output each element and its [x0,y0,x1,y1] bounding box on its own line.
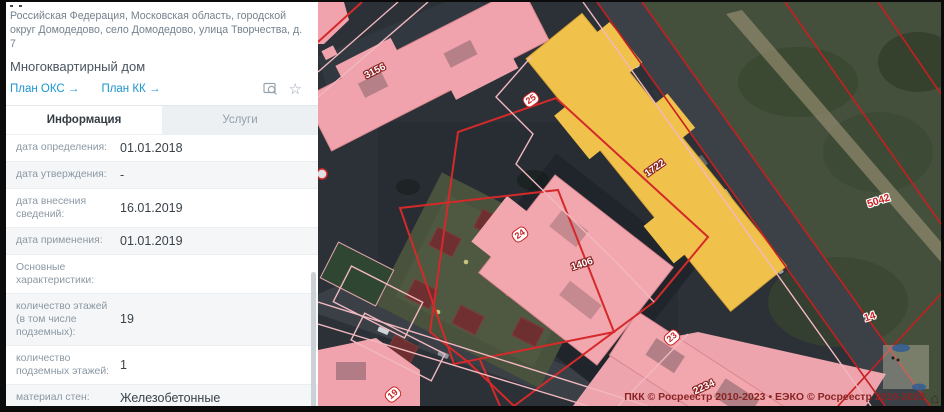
info-row: количество подземных этажей: 1 [6,345,318,384]
tab-bar: Информация Услуги [6,105,318,134]
plan-kk-link[interactable]: План КК → [101,83,160,95]
info-row: материал стен: Железобетонные [6,384,318,406]
app-window: Российская Федерация, Московская область… [0,0,944,412]
object-type-title: Многоквартирный дом [10,59,308,74]
map-attribution: ПКК © Росреестр 2010-2023 • ЕЭКО © Росре… [624,391,925,403]
satellite-layer [318,2,941,406]
clipped-heading-fragment [10,2,28,7]
header-icons: ☆ [263,82,308,97]
map-canvas[interactable]: 3156 1722 1406 2234 5042 14 25 24 23 19 … [318,2,941,406]
light-tile [883,344,929,391]
sidebar-scrollbar-thumb[interactable] [311,272,316,406]
info-row: дата определения: 01.01.2018 [6,134,318,161]
home-icon[interactable]: ⌂ [931,391,939,405]
tab-services[interactable]: Услуги [162,106,318,134]
tab-information[interactable]: Информация [6,106,162,134]
object-address: Российская Федерация, Московская область… [10,10,308,52]
info-row: дата применения: 01.01.2019 [6,227,318,254]
preview-search-icon[interactable] [263,82,279,96]
object-header: Российская Федерация, Московская область… [6,2,318,97]
info-row: дата внесения сведений: 16.01.2019 [6,188,318,227]
info-panel: Российская Федерация, Московская область… [6,2,318,406]
info-rows: дата определения: 01.01.2018 дата утверж… [6,134,318,406]
star-icon[interactable]: ☆ [289,82,302,97]
edge-ring-marker [318,169,327,179]
info-row: количество этажей (в том числе подземных… [6,293,318,345]
info-row: дата утверждения: - [6,161,318,188]
info-row: Основные характеристики: [6,254,318,293]
plan-links-row: План ОКС → План КК → ☆ [10,82,308,97]
plan-oks-link[interactable]: План ОКС → [10,83,79,95]
